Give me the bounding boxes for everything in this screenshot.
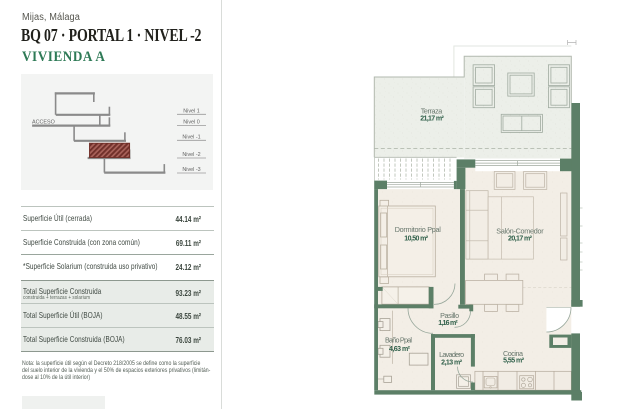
svg-text:ACCESO: ACCESO — [32, 119, 55, 125]
svg-text:2,13 m²: 2,13 m² — [441, 360, 463, 367]
svg-text:Baño Ppal: Baño Ppal — [385, 335, 412, 344]
svg-text:1,16 m²: 1,16 m² — [438, 320, 458, 327]
svg-text:20,17 m²: 20,17 m² — [508, 236, 533, 243]
svg-text:10,50 m²: 10,50 m² — [404, 236, 428, 243]
svg-text:Dormitorio Ppal: Dormitorio Ppal — [395, 225, 442, 234]
svg-text:Salón-Comedor: Salón-Comedor — [496, 227, 544, 236]
svg-text:Nivel 1: Nivel 1 — [183, 108, 199, 114]
svg-text:Pasillo: Pasillo — [440, 311, 459, 320]
svg-text:Terraza: Terraza — [421, 107, 443, 116]
svg-text:Nivel 0: Nivel 0 — [183, 120, 199, 126]
svg-text:4,63 m²: 4,63 m² — [389, 346, 411, 353]
svg-text:Nivel -3: Nivel -3 — [182, 167, 200, 173]
svg-text:5,55 m²: 5,55 m² — [503, 357, 525, 364]
svg-text:Lavadero: Lavadero — [439, 350, 464, 359]
svg-text:Nivel -2: Nivel -2 — [182, 152, 200, 158]
svg-text:21,17 m²: 21,17 m² — [420, 116, 444, 123]
svg-text:Nivel -1: Nivel -1 — [182, 134, 200, 140]
